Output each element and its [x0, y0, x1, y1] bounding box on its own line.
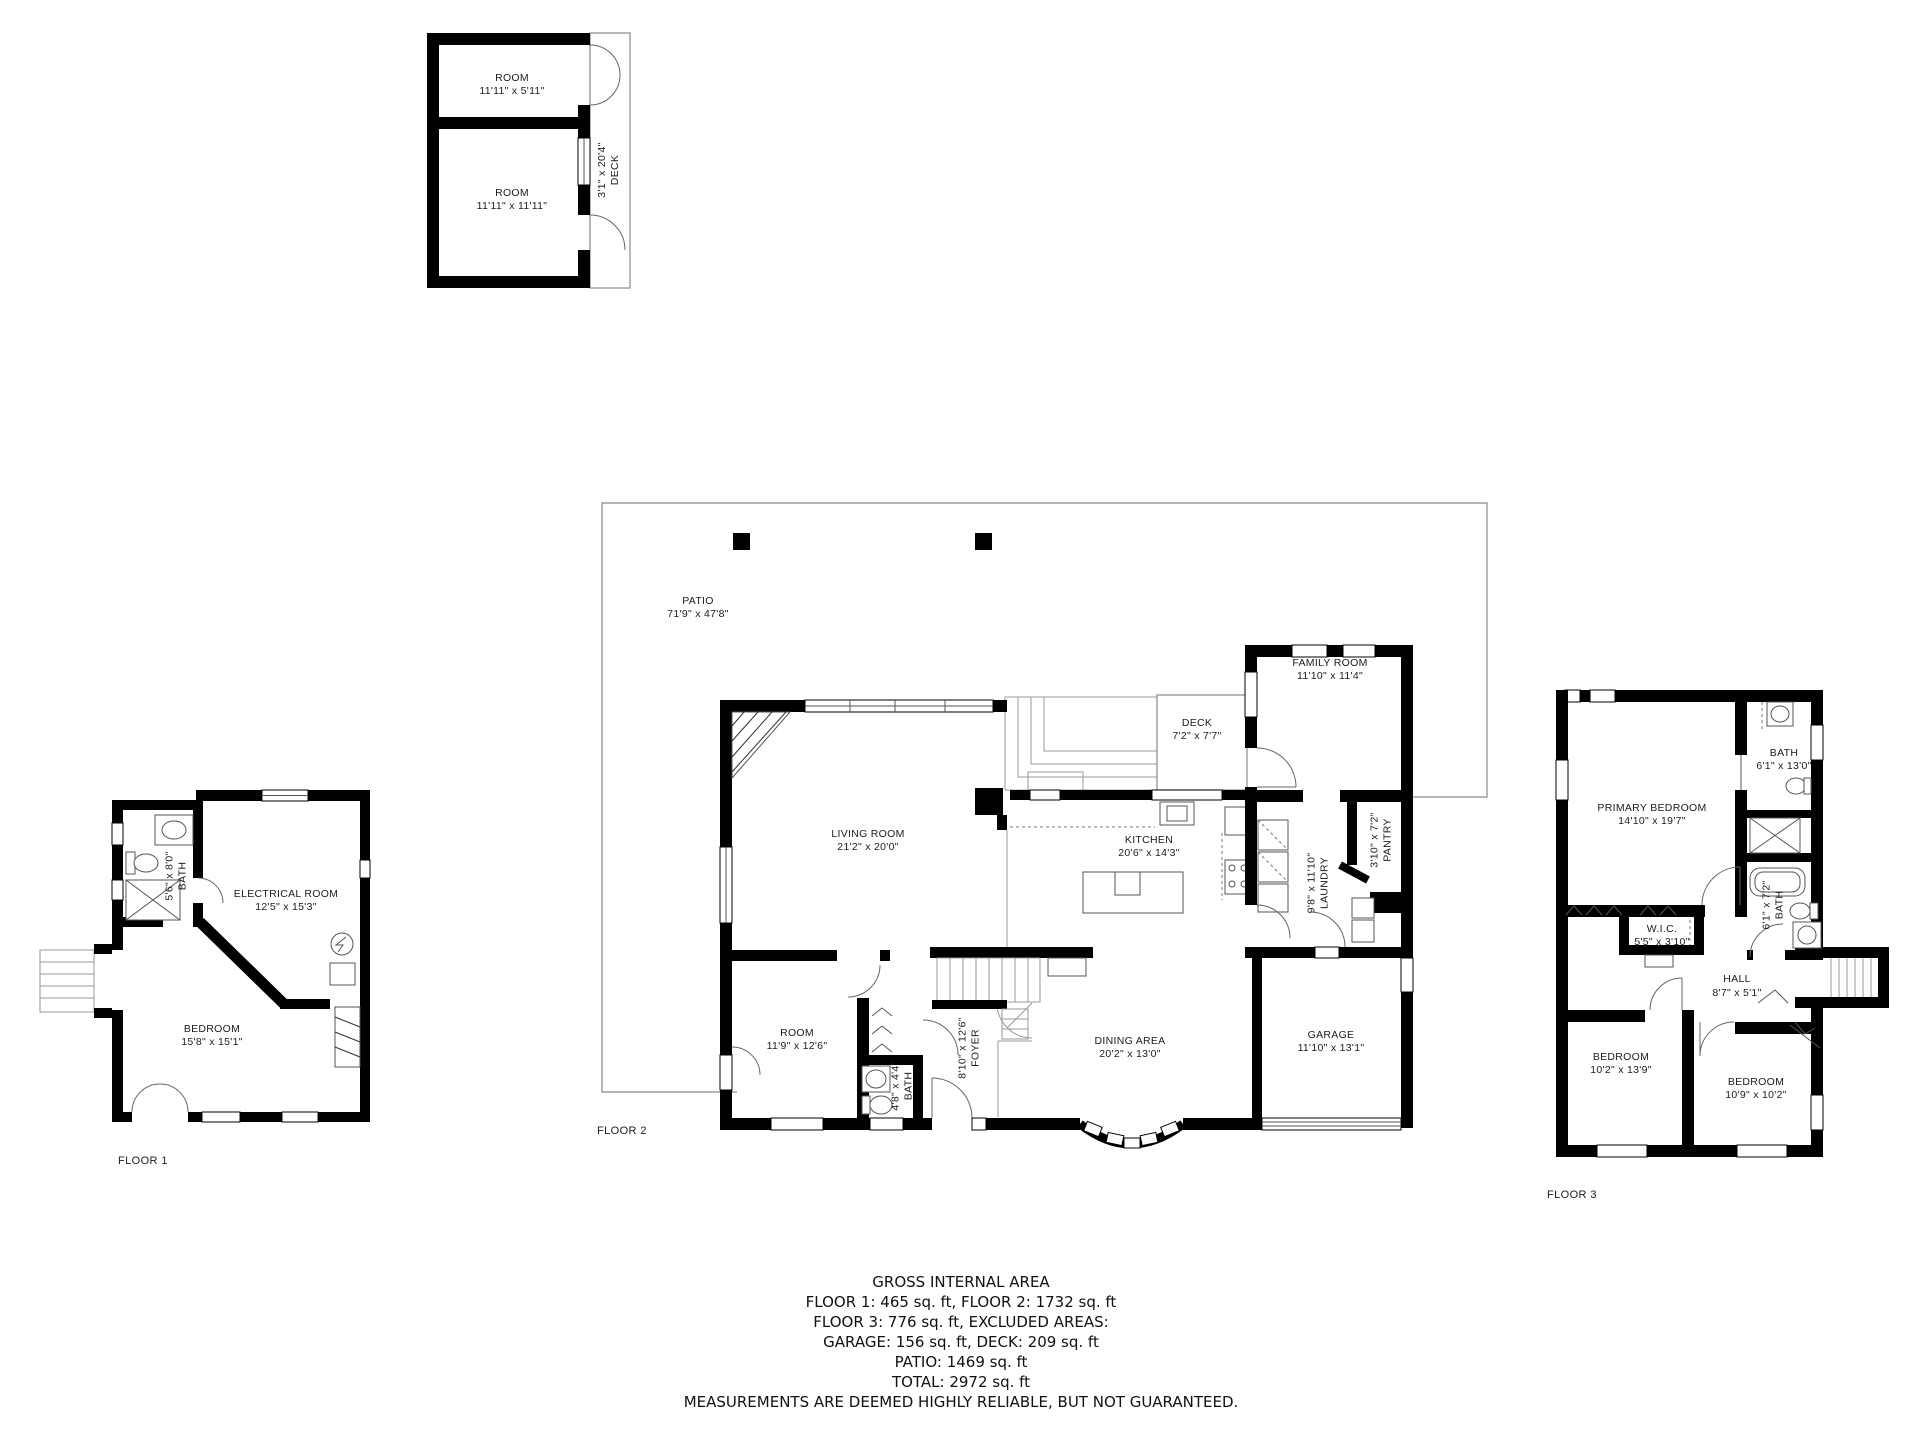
room-dims: 15'8" x 15'1" — [181, 1036, 243, 1048]
room-label-living: LIVING ROOM 21'2" x 20'0" — [831, 828, 904, 853]
front-door — [932, 1078, 986, 1130]
room-label-kitchen: KITCHEN 20'6" x 14'3" — [1118, 834, 1180, 859]
room-name: FOYER — [970, 1029, 982, 1067]
room-dims: 10'2" x 13'9" — [1590, 1064, 1652, 1076]
room-name: BEDROOM — [184, 1023, 240, 1035]
room-name: PRIMARY BEDROOM — [1597, 802, 1706, 814]
washer-dryer — [1258, 820, 1288, 912]
room-label-wic: W.I.C. 5'5" x 3'10" — [1634, 923, 1689, 948]
room-label-primary: PRIMARY BEDROOM 14'10" x 19'7" — [1597, 802, 1706, 827]
room-dims: 11'10" x 11'4" — [1297, 670, 1363, 682]
room-name: PATIO — [682, 595, 713, 607]
room-dims: 12'5" x 15'3" — [255, 901, 317, 913]
room-name: LAUNDRY — [1319, 857, 1331, 909]
room-dims: 4'8" x 4'4" — [890, 1061, 902, 1110]
room-dims: 11'10" x 13'1" — [1298, 1042, 1365, 1054]
room-name: KITCHEN — [1125, 834, 1173, 846]
room-label-bedroom-right: BEDROOM 10'9" x 10'2" — [1725, 1076, 1787, 1101]
window — [282, 1112, 318, 1122]
bedroom-left-door — [1650, 978, 1682, 1010]
room-name: DECK — [1182, 717, 1212, 729]
garage — [1252, 892, 1413, 1130]
room-label-electrical: ELECTRICAL ROOM 12'5" x 15'3" — [234, 888, 338, 913]
patio-post — [975, 533, 992, 550]
toilet — [126, 852, 158, 874]
room-name: BATH — [177, 862, 189, 890]
floor1-plan: BATH 5'6" x 8'0" ELECTRICAL ROOM 12'5" x… — [40, 790, 370, 1167]
deck-steps — [1005, 697, 1157, 790]
room-name: DECK — [609, 155, 621, 185]
window — [1030, 790, 1060, 800]
window — [870, 1118, 903, 1130]
door-arc — [923, 1020, 958, 1055]
room-name: W.I.C. — [1647, 923, 1677, 935]
room-dims: 3'1" x 20'4" — [596, 142, 608, 197]
window — [1315, 947, 1339, 958]
stair-arrow — [1758, 990, 1788, 1003]
floor2-plan: PATIO 71'9" x 47'8" DECK 7'2" x 7'7" — [597, 503, 1487, 1148]
floorplan-page: ROOM 11'11" x 5'11" ROOM 11'11" x 11'11"… — [0, 0, 1920, 1440]
room-dims: 11'9" x 12'6" — [767, 1040, 828, 1052]
top-plan: ROOM 11'11" x 5'11" ROOM 11'11" x 11'11"… — [427, 33, 630, 288]
sink — [155, 815, 193, 845]
window — [1401, 958, 1413, 992]
room-label-top-room2: ROOM 11'11" x 11'11" — [477, 187, 548, 212]
room-dims: 10'9" x 10'2" — [1725, 1089, 1787, 1101]
room-name: ROOM — [495, 72, 529, 84]
window — [1292, 645, 1327, 657]
diagonal-wall — [200, 922, 284, 1004]
room-name: GARAGE — [1308, 1029, 1355, 1041]
bedroom-right-door — [1700, 1022, 1734, 1056]
room-label-deck2: DECK 7'2" x 7'7" — [1172, 717, 1221, 742]
room-dims: 21'2" x 20'0" — [837, 841, 899, 853]
room-label-top-deck: DECK 3'1" x 20'4" — [596, 142, 621, 197]
room-label-hall: HALL 8'7" x 5'1" — [1712, 973, 1761, 999]
floor3-label: FLOOR 3 — [1547, 1189, 1597, 1201]
garage-door — [1262, 1118, 1401, 1130]
stairs — [40, 944, 112, 1018]
room-dims: 5'6" x 8'0" — [164, 851, 176, 900]
room-name: BATH — [1770, 747, 1798, 759]
stairs — [930, 947, 1093, 1117]
room-label-garage: GARAGE 11'10" x 13'1" — [1298, 1029, 1365, 1054]
room-label-bath2: BATH 4'8" x 4'4" — [890, 1061, 915, 1110]
summary-line: PATIO: 1469 sq. ft — [561, 1352, 1361, 1372]
room-dims: 5'5" x 3'10" — [1634, 936, 1689, 948]
door-arc — [732, 1047, 760, 1075]
room-name: BATH — [1774, 891, 1786, 919]
floor1-label: FLOOR 1 — [118, 1155, 168, 1167]
room-name: ROOM — [780, 1027, 814, 1039]
deck2-outline — [1157, 695, 1247, 790]
window — [1811, 725, 1823, 760]
room-label-patio: PATIO 71'9" x 47'8" — [667, 595, 729, 620]
room-name: BATH — [903, 1072, 915, 1100]
bath2 — [857, 1020, 958, 1118]
room-dims: 11'11" x 11'11" — [477, 200, 548, 212]
fireplace — [335, 1007, 360, 1067]
door-arc — [198, 878, 223, 903]
summary-title: GROSS INTERNAL AREA — [561, 1272, 1361, 1292]
door-arc — [590, 215, 625, 250]
window — [1245, 672, 1257, 717]
stair-hatch — [732, 712, 790, 778]
electrical-symbol-icon — [330, 933, 355, 985]
room-label-bedroom1: BEDROOM 15'8" x 15'1" — [181, 1023, 243, 1048]
window — [1152, 790, 1222, 800]
room-label-laundry: LAUNDRY 9'8" x 11'10" — [1306, 853, 1331, 914]
room-name: BEDROOM — [1593, 1051, 1649, 1063]
shower — [1750, 818, 1800, 853]
window — [1737, 1145, 1787, 1157]
sink — [862, 1066, 890, 1092]
window — [202, 1112, 240, 1122]
room-label-family: FAMILY ROOM 11'10" x 11'4" — [1292, 657, 1367, 682]
french-doors — [590, 45, 620, 105]
room-label-bedroom-left: BEDROOM 10'2" x 13'9" — [1590, 1051, 1652, 1076]
window — [1597, 1145, 1647, 1157]
kitchen-fixtures — [975, 788, 1251, 950]
stairs — [1758, 947, 1889, 1008]
room-label-foyer: FOYER 8'10" x 12'6" — [957, 1017, 982, 1079]
room-name: FAMILY ROOM — [1292, 657, 1367, 669]
window — [1343, 645, 1375, 657]
floorplan-svg: ROOM 11'11" x 5'11" ROOM 11'11" x 11'11"… — [0, 0, 1920, 1440]
room-dims: 8'7" x 5'1" — [1712, 987, 1761, 999]
room-dims: 8'10" x 12'6" — [957, 1017, 969, 1079]
kitchen-island — [1083, 872, 1183, 913]
door-arc — [848, 965, 880, 997]
window — [1811, 1095, 1823, 1130]
summary-line: TOTAL: 2972 sq. ft — [561, 1372, 1361, 1392]
room-name: LIVING ROOM — [831, 828, 904, 840]
room-dims: 14'10" x 19'7" — [1618, 815, 1686, 827]
bay-window — [1080, 1121, 1183, 1148]
primary-door — [1702, 867, 1740, 905]
room-dims: 6'1" x 13'0" — [1756, 760, 1811, 772]
room-dims: 6'1" x 7'2" — [1761, 880, 1773, 929]
room-name: ROOM — [495, 187, 529, 199]
room-dims: 71'9" x 47'8" — [667, 608, 729, 620]
cabinet — [1048, 958, 1086, 976]
summary-disclaimer: MEASUREMENTS ARE DEEMED HIGHLY RELIABLE,… — [561, 1392, 1361, 1412]
window — [112, 823, 123, 845]
room-dims: 9'8" x 11'10" — [1306, 853, 1318, 914]
room-label-dining: DINING AREA 20'2" x 13'0" — [1095, 1035, 1166, 1060]
window — [360, 860, 370, 878]
door-arc — [1310, 912, 1345, 947]
summary-line: FLOOR 1: 465 sq. ft, FLOOR 2: 1732 sq. f… — [561, 1292, 1361, 1312]
room-dims: 7'2" x 7'7" — [1172, 730, 1221, 742]
floor3-plan: W.I.C. 5'5" x 3'10" PRIMARY BEDROOM 14'1… — [1547, 690, 1889, 1201]
window — [720, 1055, 732, 1090]
room-name: PANTRY — [1382, 818, 1394, 861]
room-name: BEDROOM — [1728, 1076, 1784, 1088]
room-label-top-room1: ROOM 11'11" x 5'11" — [479, 72, 544, 97]
window — [771, 1118, 823, 1130]
room-label-pantry: PANTRY 3'10" x 7'2" — [1369, 812, 1394, 867]
room-label-room2: ROOM 11'9" x 12'6" — [767, 1027, 828, 1052]
toilet — [862, 1096, 892, 1114]
area-summary: GROSS INTERNAL AREA FLOOR 1: 465 sq. ft,… — [561, 1272, 1361, 1412]
french-doors — [132, 1084, 188, 1112]
summary-line: FLOOR 3: 776 sq. ft, EXCLUDED AREAS: — [561, 1312, 1361, 1332]
window — [1556, 760, 1568, 800]
patio-post — [733, 533, 750, 550]
room-name: ELECTRICAL ROOM — [234, 888, 338, 900]
room-label-bath-top: BATH 6'1" x 13'0" — [1756, 747, 1811, 772]
window — [112, 880, 123, 900]
room-dims: 11'11" x 5'11" — [479, 85, 544, 97]
window — [1590, 690, 1615, 702]
room-dims: 20'2" x 13'0" — [1099, 1048, 1161, 1060]
floor2-label: FLOOR 2 — [597, 1125, 647, 1137]
room-name: DINING AREA — [1095, 1035, 1166, 1047]
closet-hangers — [872, 1008, 892, 1052]
room-dims: 20'6" x 14'3" — [1118, 847, 1180, 859]
door-arc — [1257, 748, 1296, 787]
summary-line: GARAGE: 156 sq. ft, DECK: 209 sq. ft — [561, 1332, 1361, 1352]
room-dims: 3'10" x 7'2" — [1369, 812, 1381, 867]
room-name: HALL — [1723, 973, 1750, 985]
